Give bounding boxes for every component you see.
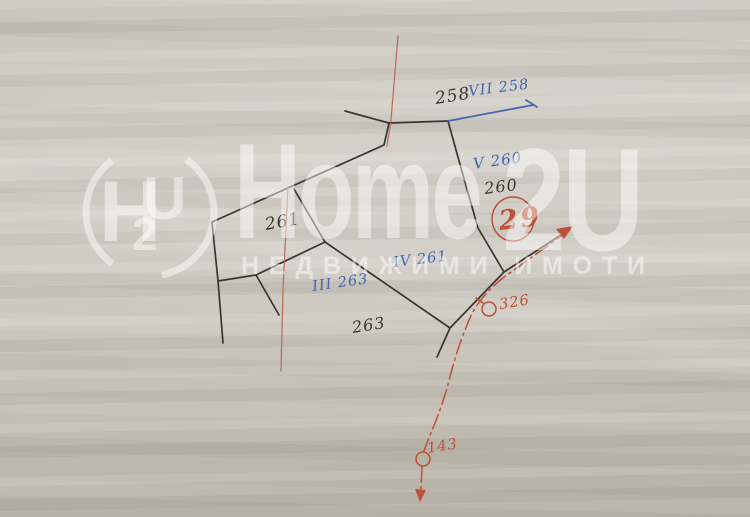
cadastral-sketch-drawing: 258 260 261 263 VII 258 V 260 IV 261 III… bbox=[0, 0, 750, 517]
cadastral-sketch-photo: 258 260 261 263 VII 258 V 260 IV 261 III… bbox=[0, 0, 750, 517]
watermark-tagline-text: НЕДВИЖИМИ ИМОТИ bbox=[241, 252, 645, 280]
road-centerline-stem bbox=[421, 467, 422, 489]
parcel-label-258: 258 bbox=[433, 84, 472, 109]
arrow-south-icon bbox=[415, 489, 426, 502]
regulated-label-vii-258: VII 258 bbox=[468, 77, 531, 100]
survey-point-label-143: 143 bbox=[426, 436, 459, 457]
survey-point-circle-326 bbox=[482, 302, 496, 316]
watermark-logo-letter-u: U bbox=[143, 165, 186, 232]
survey-point-label-326: 326 bbox=[498, 292, 531, 313]
watermark-brand-text: Home bbox=[234, 115, 480, 267]
watermark: H 2 U Home 2U НЕДВИЖИМИ ИМОТИ bbox=[61, 115, 645, 301]
inner-branch-line bbox=[218, 275, 279, 315]
parcel-label-263: 263 bbox=[350, 313, 387, 337]
south-tail-line bbox=[437, 328, 450, 357]
